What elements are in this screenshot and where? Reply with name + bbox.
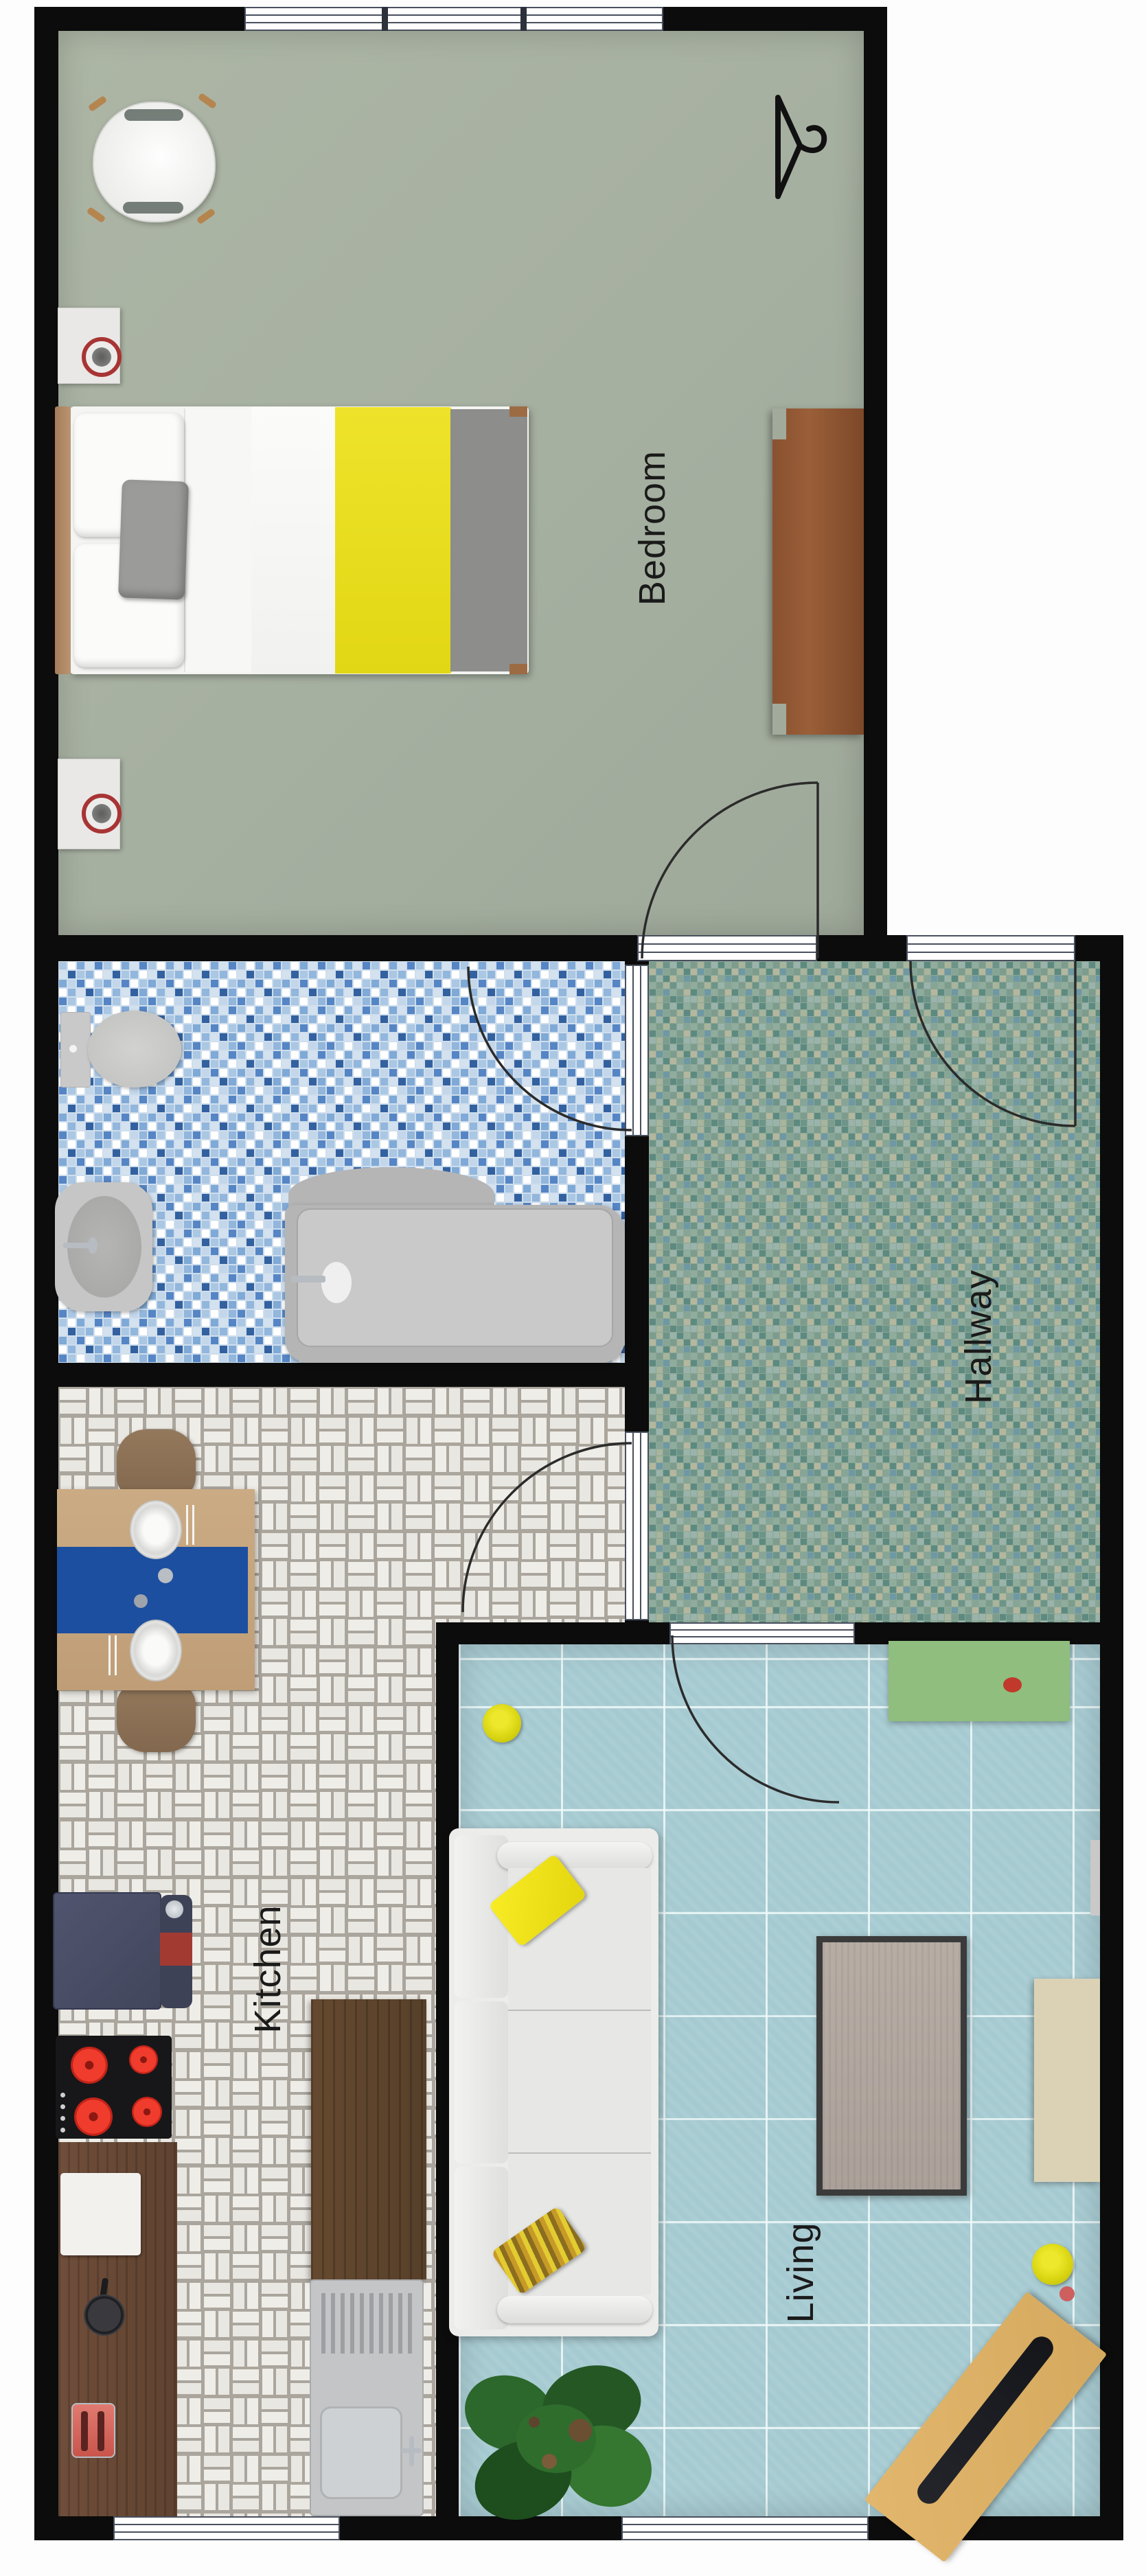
chair-slot (123, 202, 183, 214)
living-door-arc (672, 1635, 839, 1802)
sink-faucet-bar (401, 2448, 422, 2453)
green-wall-shelf (889, 1641, 1070, 1721)
shelf-vase (1003, 1677, 1022, 1692)
chair-slot (124, 109, 183, 121)
sink-drainer (321, 2293, 413, 2354)
bedroom-armchair (93, 102, 216, 222)
coffee-table (816, 1936, 967, 2196)
burner (71, 2047, 108, 2084)
toilet (88, 1011, 181, 1088)
living-sideboard (1034, 1979, 1100, 2182)
entry-door-arc (910, 961, 1075, 1126)
kitchen-label: Kitchen (247, 1832, 288, 2106)
bed-pillow-gray (118, 479, 189, 599)
sofa-armrest (497, 2296, 652, 2323)
bed-headboard (55, 406, 71, 674)
bedroom-sideboard (772, 409, 864, 735)
kitchen-island (311, 1999, 426, 2279)
speaker-top (82, 337, 122, 377)
sink-basin (320, 2406, 402, 2499)
sofa-armrest (497, 1842, 652, 1870)
kitchen-door-arc (463, 1443, 632, 1612)
dining-chair-top (117, 1429, 196, 1498)
small-red-ball (1059, 2286, 1075, 2301)
plate-top (130, 1500, 182, 1559)
speaker-bottom (82, 794, 122, 833)
bed-post (509, 406, 527, 417)
burner (129, 2045, 158, 2074)
cutting-board (60, 2173, 141, 2255)
bedroom-label: Bedroom (632, 391, 673, 665)
wall-vent (1090, 1840, 1100, 1916)
fridge (53, 1892, 161, 2010)
dining-chair-bottom (117, 1683, 196, 1752)
hallway-label: Hallway (958, 1199, 999, 1474)
bathtub-faucet (291, 1276, 325, 1283)
pan (84, 2295, 125, 2336)
bidet-faucet-knob (88, 1237, 98, 1254)
bed-duvet-white (251, 407, 336, 674)
sideboard-notch (772, 409, 786, 439)
bed-blanket-gray (450, 409, 527, 671)
bedroom-door-arc (642, 783, 818, 958)
bed-duvet-yellow (335, 407, 452, 674)
cutlery (186, 1505, 188, 1545)
cooktop-control (60, 2104, 65, 2109)
bathroom-door-arc (468, 967, 632, 1130)
plate-bottom (130, 1620, 182, 1681)
pouf-top (483, 1704, 521, 1743)
living-label: Living (780, 2135, 821, 2410)
bed-post (509, 664, 527, 674)
burner (132, 2097, 162, 2127)
toilet-button (69, 1045, 77, 1053)
burner (74, 2097, 113, 2136)
cutlery (108, 1635, 111, 1675)
cutlery (115, 1635, 117, 1675)
cooktop-control (60, 2116, 65, 2121)
sideboard-notch (772, 704, 786, 735)
cutlery (192, 1505, 194, 1545)
floorplan: Bedroom Hallway Kitchen (0, 0, 1146, 2576)
bed-sheet (184, 409, 254, 672)
cooktop-control (60, 2093, 65, 2097)
cooktop-control (60, 2128, 65, 2132)
toaster (71, 2403, 115, 2458)
pouf-bottom (1032, 2244, 1073, 2285)
table-bowl (158, 1568, 173, 1583)
table-bowl (134, 1594, 148, 1608)
bathtub-drain (321, 1262, 352, 1303)
stand-mixer (160, 1895, 192, 2008)
